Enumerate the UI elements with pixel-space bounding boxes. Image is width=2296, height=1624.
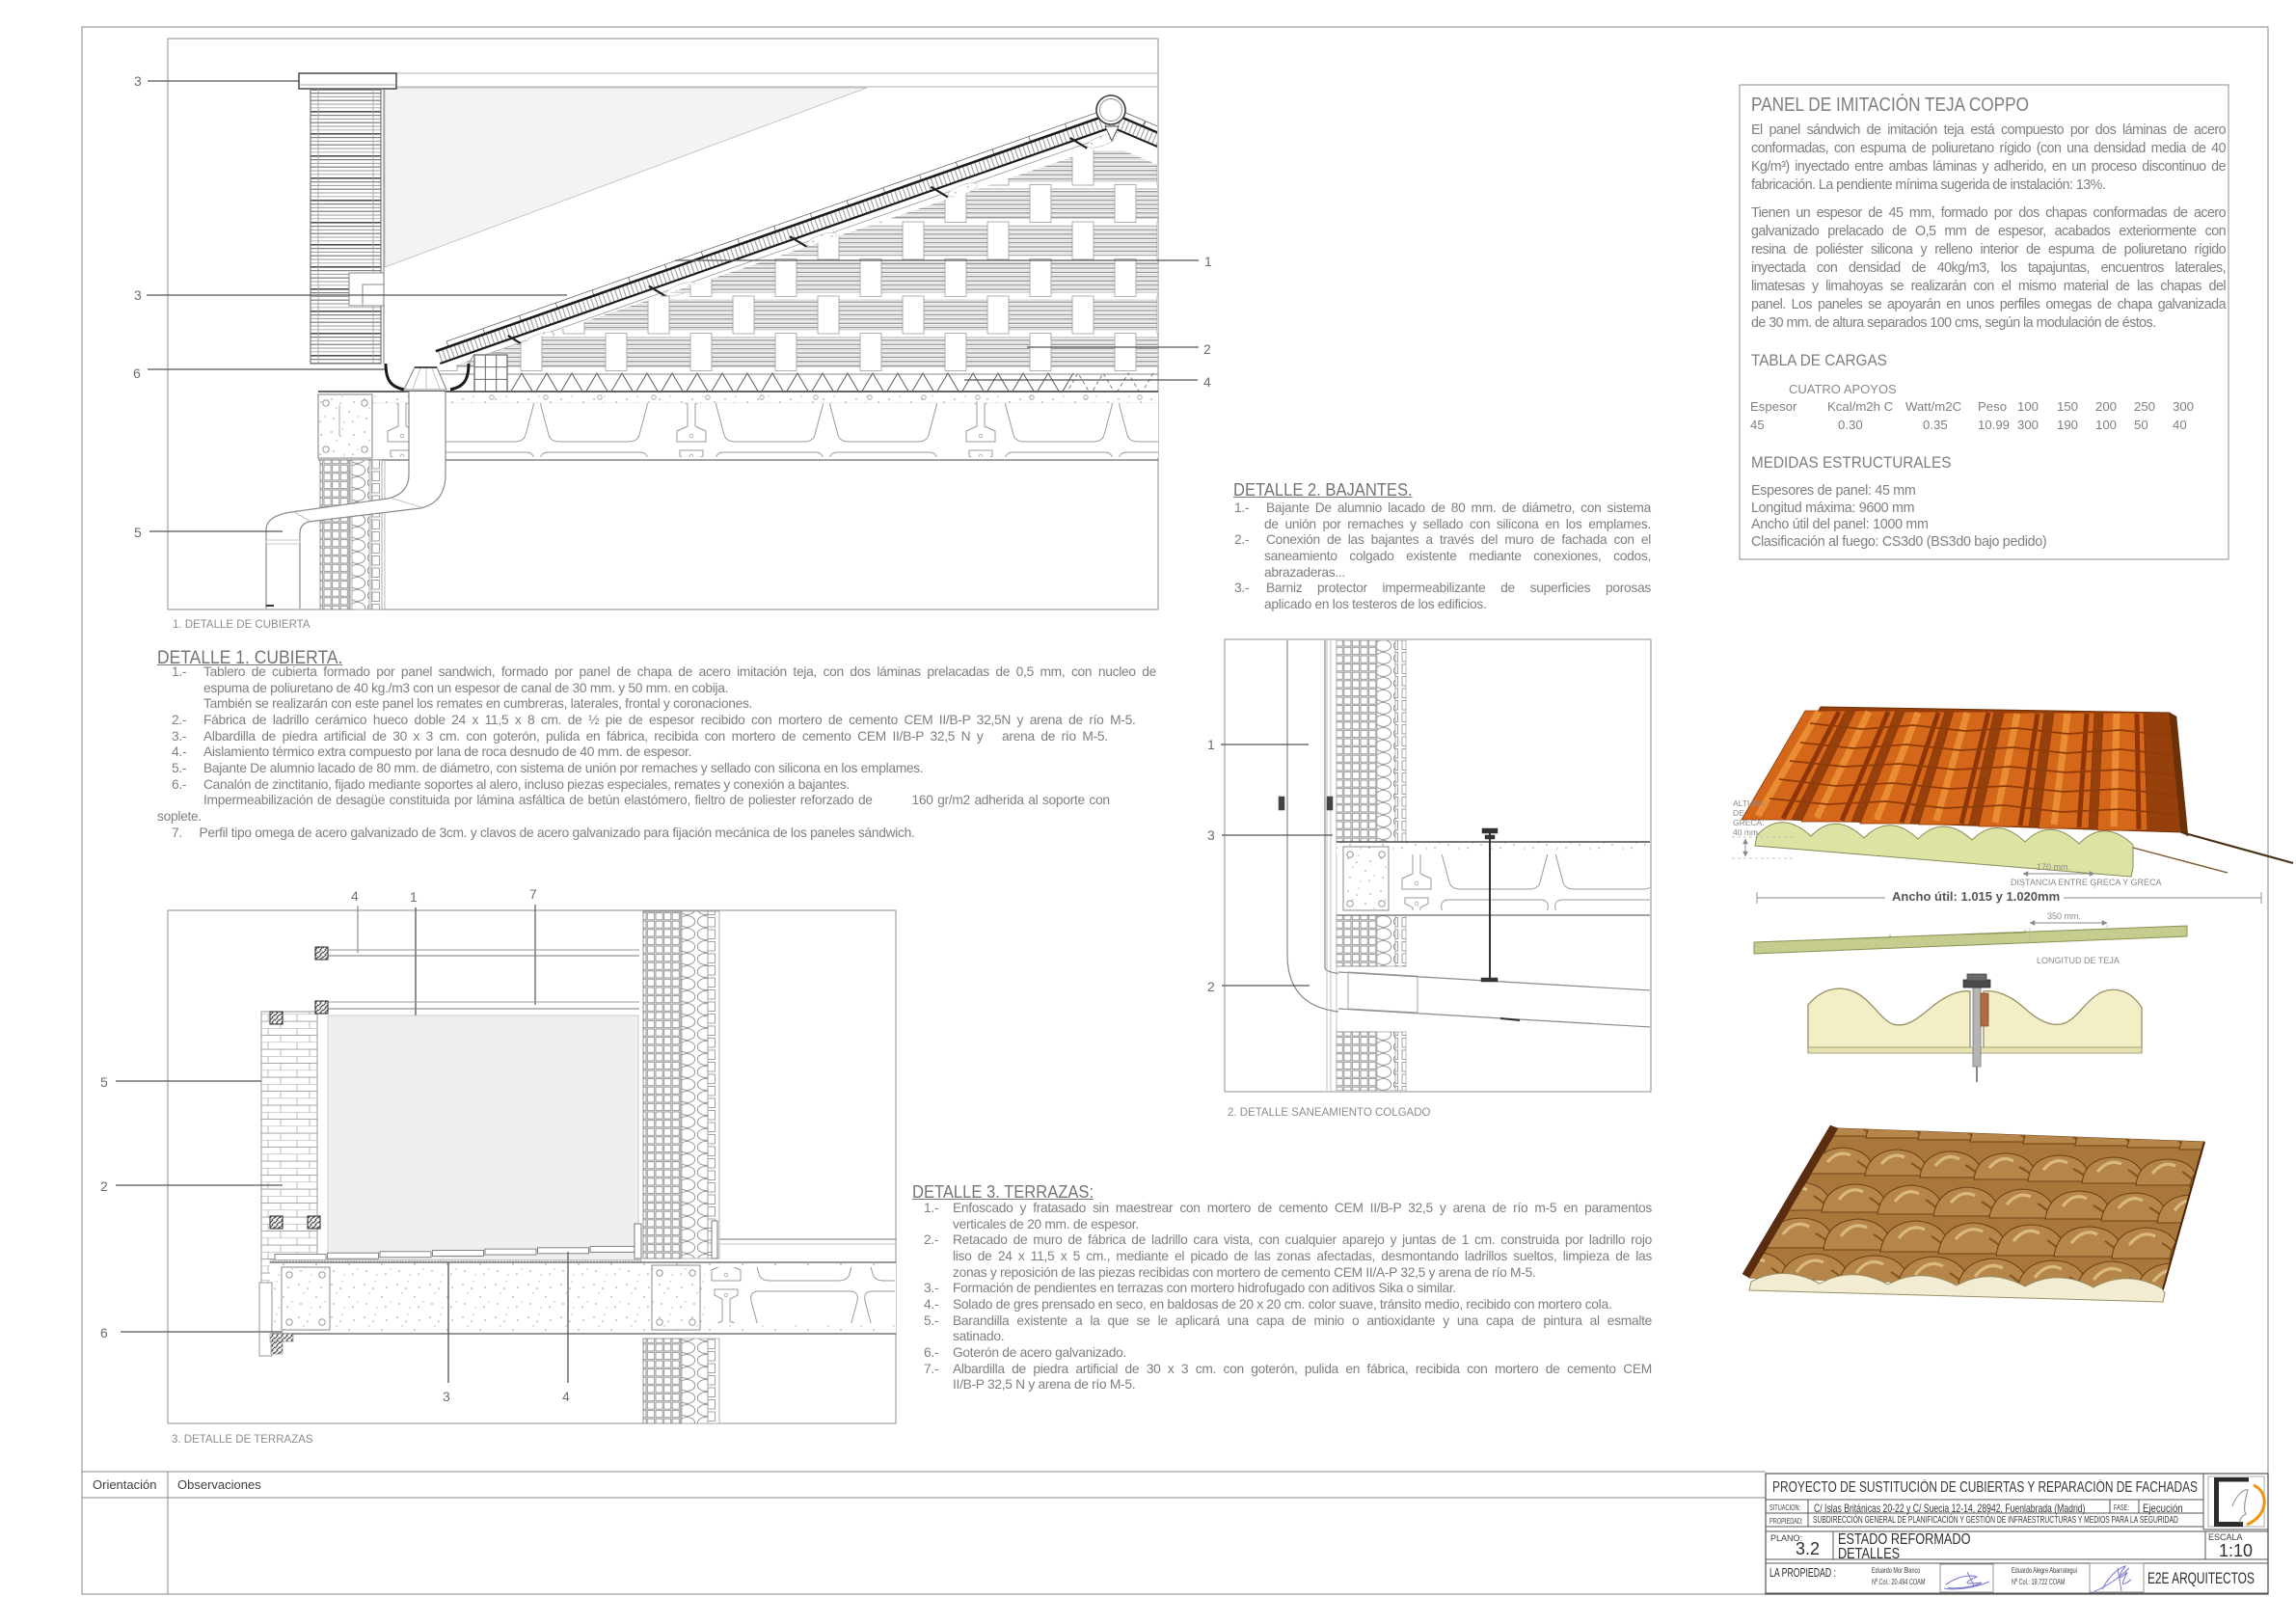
svg-text:1: 1 xyxy=(1204,254,1212,269)
svg-text:350 mm.: 350 mm. xyxy=(2047,911,2081,921)
svg-text:LONGITUD DE TEJA: LONGITUD DE TEJA xyxy=(2037,956,2120,965)
svg-text:Ancho útil: 1.015 y 1.020mm: Ancho útil: 1.015 y 1.020mm xyxy=(1892,889,2060,904)
svg-text:2: 2 xyxy=(100,1178,108,1194)
svg-text:ALTURA: ALTURA xyxy=(1733,798,1765,808)
svg-text:2: 2 xyxy=(1207,979,1215,994)
svg-text:DISTANCIA ENTRE GRECA Y GRECA: DISTANCIA ENTRE GRECA Y GRECA xyxy=(2011,878,2162,887)
svg-text:1: 1 xyxy=(410,889,418,905)
svg-text:1. DETALLE DE CUBIERTA: 1. DETALLE DE CUBIERTA xyxy=(173,619,311,631)
svg-text:40 mm.: 40 mm. xyxy=(1733,827,1760,837)
svg-text:5: 5 xyxy=(134,525,142,540)
svg-text:7: 7 xyxy=(529,886,537,902)
svg-text:6: 6 xyxy=(100,1325,108,1340)
svg-text:6: 6 xyxy=(133,365,141,381)
svg-text:GRECA:: GRECA: xyxy=(1733,818,1765,827)
svg-text:2. DETALLE SANEAMIENTO COLGADO: 2. DETALLE SANEAMIENTO COLGADO xyxy=(1228,1107,1431,1119)
svg-text:2: 2 xyxy=(1203,341,1211,357)
svg-text:4: 4 xyxy=(1203,374,1211,390)
svg-text:3: 3 xyxy=(443,1389,450,1404)
svg-text:3: 3 xyxy=(134,287,142,303)
svg-text:3: 3 xyxy=(134,73,142,89)
svg-text:4: 4 xyxy=(562,1389,570,1404)
svg-text:170 mm.: 170 mm. xyxy=(2037,862,2070,872)
svg-text:5: 5 xyxy=(100,1074,108,1090)
svg-text:3: 3 xyxy=(1207,827,1215,843)
svg-text:3. DETALLE DE TERRAZAS: 3. DETALLE DE TERRAZAS xyxy=(172,1434,313,1446)
svg-text:DE: DE xyxy=(1733,808,1744,818)
svg-text:4: 4 xyxy=(351,888,359,904)
svg-text:1: 1 xyxy=(1207,737,1215,752)
